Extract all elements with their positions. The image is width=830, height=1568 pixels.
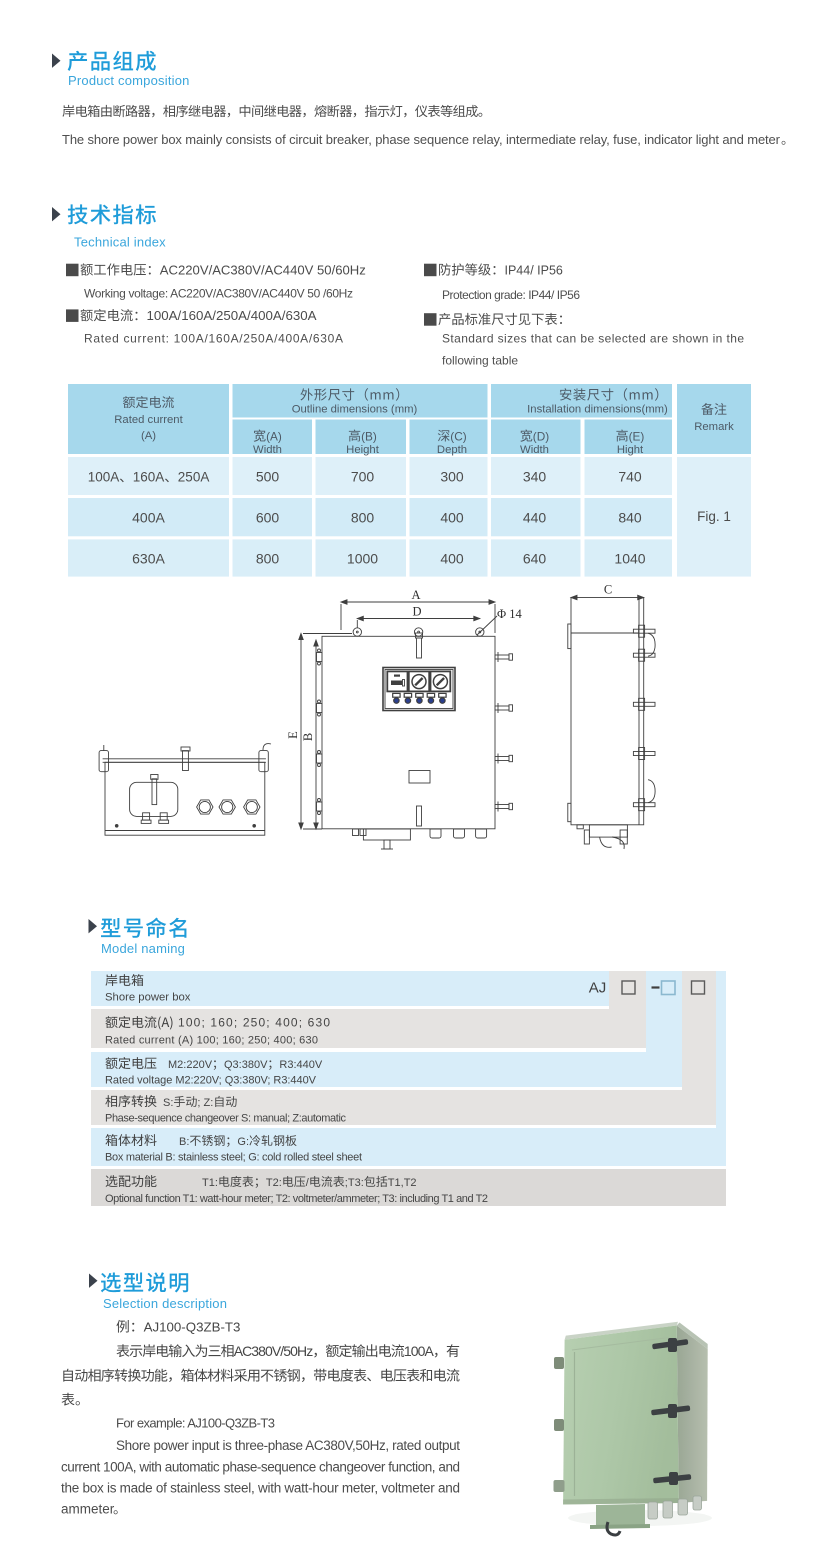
svg-text:740: 740 bbox=[618, 469, 642, 485]
svg-text:;T3:: ;T3: bbox=[345, 1177, 364, 1189]
svg-text:Rated current (A) 100; 160; 25: Rated current (A) 100; 160; 250; 400; 63… bbox=[105, 1035, 318, 1047]
svg-text:640: 640 bbox=[523, 551, 547, 567]
svg-text:ammeter: ammeter bbox=[61, 1502, 115, 1517]
svg-text:Shore power box: Shore power box bbox=[105, 992, 191, 1004]
svg-text:M2:220V: M2:220V bbox=[168, 1059, 213, 1071]
svg-text:T1:: T1: bbox=[202, 1177, 218, 1189]
svg-text:(C): (C) bbox=[450, 430, 466, 444]
svg-text:AJ100-Q3ZB-T3: AJ100-Q3ZB-T3 bbox=[144, 1320, 241, 1335]
svg-text:1000: 1000 bbox=[347, 551, 378, 567]
svg-text:440: 440 bbox=[523, 510, 547, 526]
svg-text:Rated voltage M2:220V; Q3:38: Rated voltage M2:220V; Q3:380V; R3:440V bbox=[105, 1075, 317, 1087]
svg-text:840: 840 bbox=[618, 510, 642, 526]
svg-text:Box material B: stainless st: Box material B: stainless steel; G: cold… bbox=[105, 1152, 362, 1164]
svg-text:AC380V/50Hz: AC380V/50Hz bbox=[234, 1343, 314, 1359]
svg-text:S:: S: bbox=[163, 1097, 173, 1109]
svg-text:Optional function T1: watt-ho: Optional function T1: watt-hour meter; T… bbox=[105, 1193, 488, 1205]
svg-text:B:: B: bbox=[179, 1136, 189, 1148]
svg-text:400A: 400A bbox=[132, 510, 165, 526]
svg-text:Installation dimensions(mm): Installation dimensions(mm) bbox=[527, 404, 668, 416]
svg-text:400: 400 bbox=[440, 551, 464, 567]
svg-text:300: 300 bbox=[440, 469, 464, 485]
svg-text:Φ 14: Φ 14 bbox=[497, 607, 523, 621]
svg-text:AJ: AJ bbox=[589, 980, 607, 997]
svg-text:; Z:: ; Z: bbox=[197, 1097, 213, 1109]
svg-text:Working voltage: AC220V/AC380V: Working voltage: AC220V/AC380V/AC440V 50… bbox=[84, 287, 353, 301]
svg-text:A: A bbox=[411, 588, 420, 602]
svg-text:100A/160A/250A/400A/630A: 100A/160A/250A/400A/630A bbox=[147, 308, 317, 323]
svg-text:700: 700 bbox=[351, 469, 375, 485]
svg-text:Height: Height bbox=[346, 444, 380, 456]
svg-text:Model naming: Model naming bbox=[101, 941, 185, 956]
svg-text:Phase-sequence changeover S:: Phase-sequence changeover S: manual; Z:a… bbox=[105, 1113, 347, 1125]
svg-text:(D): (D) bbox=[533, 430, 549, 444]
svg-text:IP44/ IP56: IP44/ IP56 bbox=[505, 264, 563, 278]
svg-text:E: E bbox=[286, 731, 300, 739]
svg-text:Selection description: Selection description bbox=[103, 1296, 227, 1311]
svg-text:800: 800 bbox=[351, 510, 375, 526]
svg-text:AC220V/AC380V/AC440V 50/60Hz: AC220V/AC380V/AC440V 50/60Hz bbox=[160, 263, 366, 278]
svg-text:(A): (A) bbox=[266, 430, 282, 444]
svg-text:Hight: Hight bbox=[617, 444, 644, 456]
svg-text:Q3:380V: Q3:380V bbox=[224, 1059, 268, 1071]
svg-text:Standard sizes that can be sel: Standard sizes that can be selected are … bbox=[442, 332, 744, 346]
svg-text:100; 160; 250; 400; 630: 100; 160; 250; 400; 630 bbox=[178, 1016, 330, 1030]
svg-text:D: D bbox=[412, 605, 421, 619]
svg-text:160A: 160A bbox=[133, 470, 165, 485]
svg-text:Shore power input is three-pha: Shore power input is three-phase AC380V,… bbox=[116, 1438, 460, 1453]
svg-text:Depth: Depth bbox=[437, 444, 467, 456]
svg-text:100A: 100A bbox=[404, 1343, 435, 1359]
svg-text:Rated current: 100A/160A/250A/: Rated current: 100A/160A/250A/400A/630A bbox=[84, 332, 343, 346]
svg-text:630A: 630A bbox=[132, 551, 165, 567]
svg-text:Rated current: Rated current bbox=[114, 414, 183, 426]
svg-text:340: 340 bbox=[523, 469, 547, 485]
svg-text:B: B bbox=[301, 733, 315, 741]
svg-text:G:: G: bbox=[237, 1136, 249, 1148]
svg-text:400: 400 bbox=[440, 510, 464, 526]
svg-text:100A: 100A bbox=[88, 470, 120, 485]
svg-text:Width: Width bbox=[520, 444, 549, 456]
svg-text:1040: 1040 bbox=[614, 551, 645, 567]
svg-text:(B): (B) bbox=[361, 430, 377, 444]
svg-text:Technical index: Technical index bbox=[74, 235, 166, 250]
svg-text:600: 600 bbox=[256, 510, 280, 526]
svg-text:Product composition: Product composition bbox=[68, 73, 190, 88]
svg-text:Remark: Remark bbox=[694, 421, 734, 433]
svg-text:For example: AJ100-Q3ZB-T3: For example: AJ100-Q3ZB-T3 bbox=[116, 1416, 275, 1431]
svg-text:following table: following table bbox=[442, 354, 518, 368]
svg-text:R3:440V: R3:440V bbox=[279, 1059, 322, 1071]
svg-text:250A: 250A bbox=[178, 470, 210, 485]
svg-text:C: C bbox=[604, 583, 612, 597]
svg-text:Outline dimensions (mm): Outline dimensions (mm) bbox=[292, 404, 418, 416]
svg-text:The shore power box mainly con: The shore power box mainly consists of c… bbox=[62, 132, 781, 147]
svg-text:current 100A, with automatic p: current 100A, with automatic phase-seque… bbox=[61, 1460, 460, 1475]
svg-text:T1,T2: T1,T2 bbox=[388, 1177, 417, 1189]
svg-text:Width: Width bbox=[253, 444, 282, 456]
svg-text:500: 500 bbox=[256, 469, 280, 485]
svg-text:Protection grade: IP44/ IP56: Protection grade: IP44/ IP56 bbox=[442, 288, 580, 302]
svg-text:the box is made of stainless s: the box is made of stainless steel, with… bbox=[61, 1481, 460, 1496]
svg-text:(A): (A) bbox=[141, 430, 156, 442]
svg-text:T2:: T2: bbox=[266, 1177, 282, 1189]
svg-text:Fig. 1: Fig. 1 bbox=[697, 509, 731, 524]
svg-text:800: 800 bbox=[256, 551, 280, 567]
svg-text:(E): (E) bbox=[629, 430, 645, 444]
